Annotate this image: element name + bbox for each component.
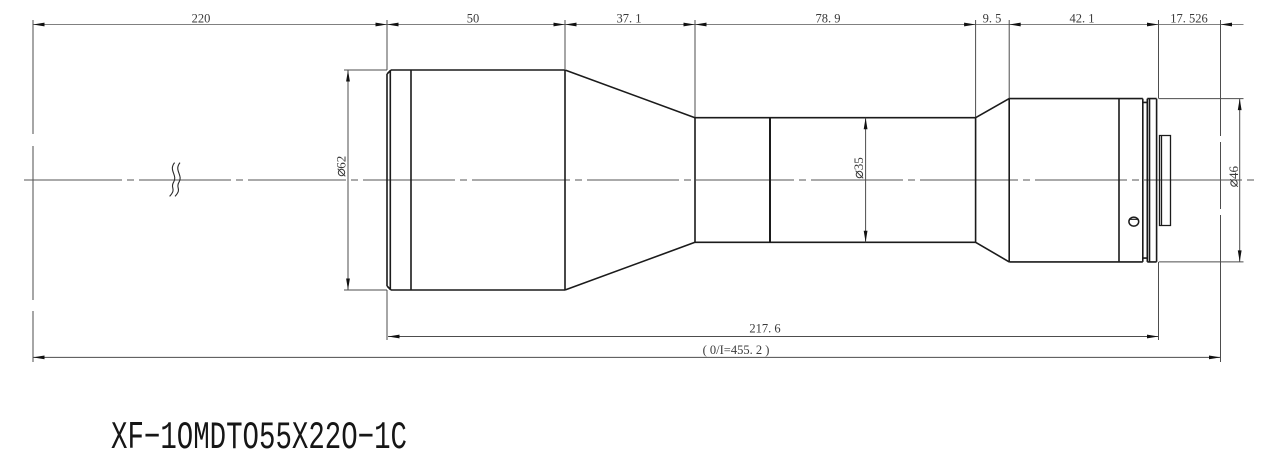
svg-text:35: 35 <box>851 157 866 170</box>
svg-text:62: 62 <box>333 156 348 169</box>
svg-text:XF−1OMDTO55X22O−1C: XF−1OMDTO55X22O−1C <box>111 417 407 460</box>
svg-text:37. 1: 37. 1 <box>617 12 642 26</box>
svg-text:50: 50 <box>467 12 480 26</box>
svg-text:9. 5: 9. 5 <box>983 12 1002 26</box>
svg-text:78. 9: 78. 9 <box>816 12 841 26</box>
svg-text:217. 6: 217. 6 <box>749 322 780 336</box>
svg-text:46: 46 <box>1226 166 1241 180</box>
svg-text:42. 1: 42. 1 <box>1070 12 1095 26</box>
svg-text:17. 526: 17. 526 <box>1170 12 1208 26</box>
svg-text:220: 220 <box>192 12 211 26</box>
svg-text:( 0/I=455. 2 ): ( 0/I=455. 2 ) <box>703 343 770 357</box>
